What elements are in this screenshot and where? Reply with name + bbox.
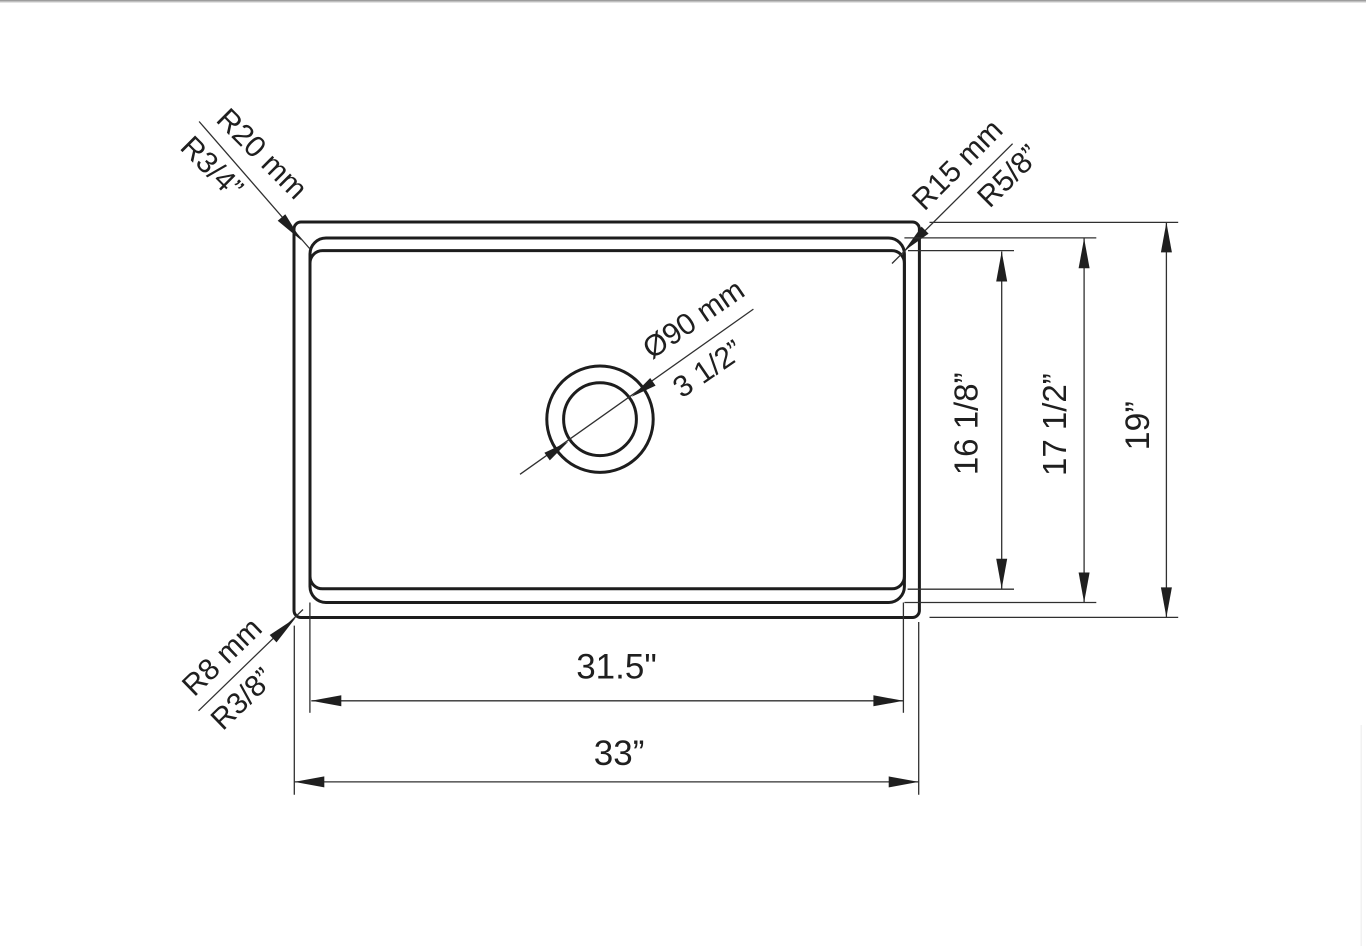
svg-text:33”: 33”: [594, 734, 645, 773]
svg-text:16 1/8”: 16 1/8”: [948, 372, 985, 475]
svg-text:17 1/2”: 17 1/2”: [1036, 373, 1073, 476]
svg-text:19”: 19”: [1119, 401, 1157, 450]
svg-text:31.5": 31.5": [576, 647, 657, 686]
